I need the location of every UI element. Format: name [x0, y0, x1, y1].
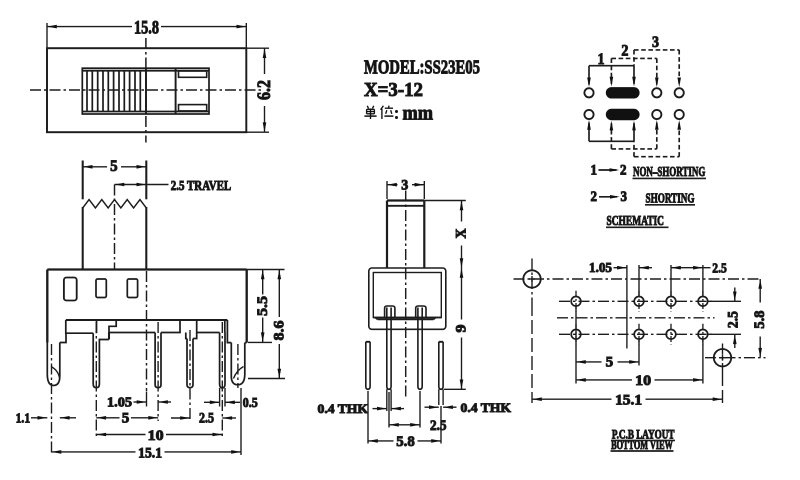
svg-text:2.5: 2.5	[712, 261, 727, 276]
svg-text:15.1: 15.1	[138, 445, 162, 461]
svg-text:2: 2	[620, 162, 627, 178]
svg-text:10: 10	[148, 428, 164, 444]
svg-text:1: 1	[591, 162, 598, 178]
svg-text:15.8: 15.8	[134, 17, 159, 38]
svg-text:NON–SHORTING: NON–SHORTING	[633, 164, 706, 179]
svg-text:5: 5	[122, 410, 130, 426]
svg-text:2.5: 2.5	[199, 411, 214, 427]
svg-text:BOTTOM VIEW: BOTTOM VIEW	[611, 438, 673, 452]
svg-text:0.4 THK: 0.4 THK	[461, 400, 512, 415]
svg-text:15.1: 15.1	[615, 392, 642, 408]
svg-text:3: 3	[652, 34, 659, 51]
svg-text:3: 3	[621, 189, 628, 205]
svg-text:1.05: 1.05	[107, 395, 132, 410]
svg-text:0.5: 0.5	[243, 396, 258, 411]
svg-text:1: 1	[598, 51, 605, 68]
svg-text:2: 2	[621, 42, 628, 59]
svg-text:6.2: 6.2	[254, 80, 275, 100]
svg-text:2.5 TRAVEL: 2.5 TRAVEL	[171, 179, 231, 194]
svg-text:5.5: 5.5	[255, 296, 271, 316]
svg-text:mm: mm	[403, 103, 434, 124]
svg-text:2.5: 2.5	[430, 418, 447, 434]
svg-text:5.8: 5.8	[752, 311, 768, 329]
svg-text:2.5: 2.5	[726, 311, 742, 328]
svg-text:SHORTING: SHORTING	[646, 191, 695, 206]
svg-text:0.4 THK: 0.4 THK	[318, 401, 369, 416]
svg-text:X=3-12: X=3-12	[364, 80, 423, 101]
svg-text:5.8: 5.8	[396, 434, 415, 450]
svg-text:9: 9	[454, 325, 470, 333]
svg-text:1.1: 1.1	[16, 411, 31, 426]
svg-text:X: X	[454, 228, 470, 238]
svg-text:2: 2	[591, 189, 598, 205]
svg-text:MODEL:SS23E05: MODEL:SS23E05	[364, 57, 480, 78]
svg-text:SCHEMATIC: SCHEMATIC	[607, 213, 665, 228]
svg-text:5: 5	[110, 158, 118, 175]
svg-text:3: 3	[401, 177, 408, 193]
svg-text:5: 5	[606, 355, 614, 371]
svg-text:8.6: 8.6	[272, 320, 288, 341]
svg-text:1.05: 1.05	[589, 261, 612, 276]
svg-text:10: 10	[635, 373, 651, 389]
